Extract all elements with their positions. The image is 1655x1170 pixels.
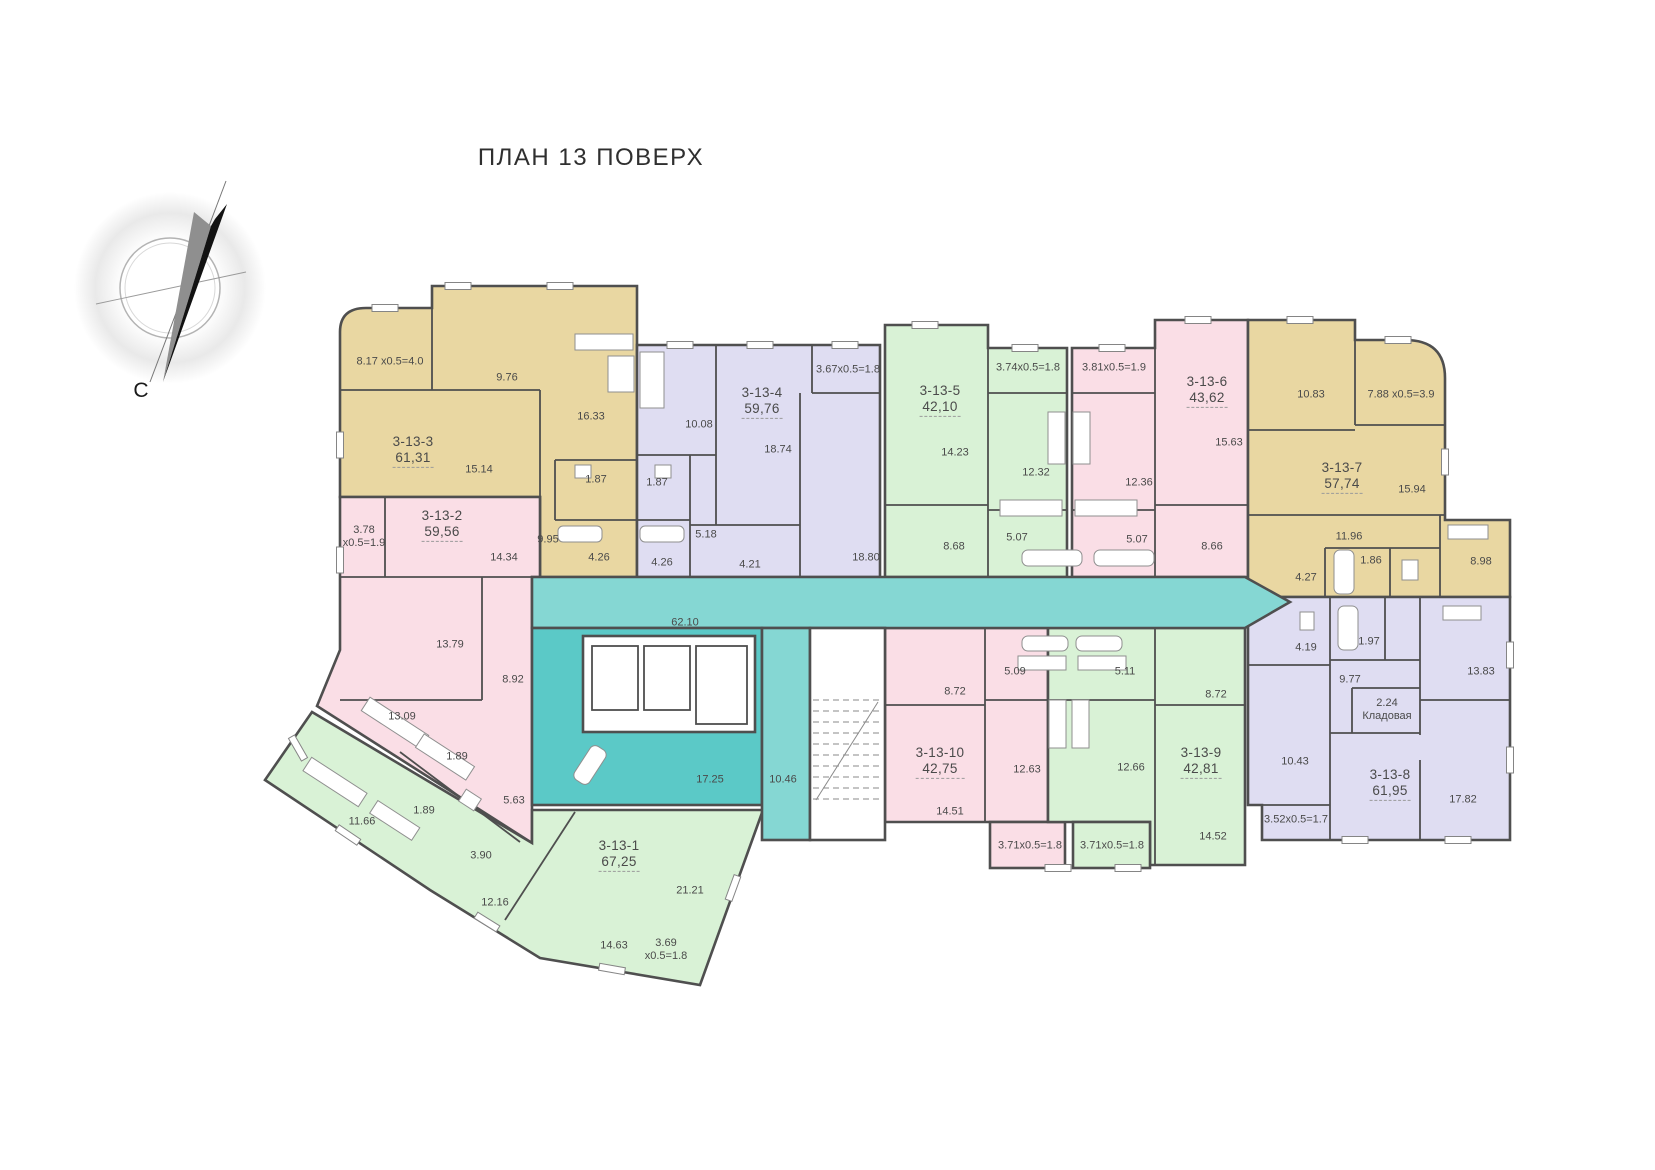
room-area-label: 5.63 — [503, 794, 524, 807]
room-area-label: 5.07 — [1006, 531, 1027, 544]
room-area-label: 15.63 — [1215, 436, 1243, 449]
corridor-area-label: 10.46 — [769, 773, 797, 786]
room-area-label: 1.97 — [1358, 635, 1379, 648]
room-area-label: 8.72 — [944, 685, 965, 698]
room-area-label: 12.32 — [1022, 466, 1050, 479]
apartment-3-13-2-label: 3-13-259,56 — [422, 508, 463, 542]
room-area-label: 3.71x0.5=1.8 — [1080, 839, 1144, 852]
apartment-3-13-8-label: 3-13-861,95 — [1370, 767, 1411, 801]
room-area-label: 2.24Кладовая — [1362, 697, 1411, 723]
room-area-label: 1.87 — [646, 476, 667, 489]
room-area-label: 21.21 — [676, 884, 704, 897]
room-area-label: 9.95 — [537, 533, 558, 546]
room-area-label: 8.92 — [502, 673, 523, 686]
room-area-label: 12.36 — [1125, 476, 1153, 489]
floor-plan-page: ПЛАН 13 ПОВЕРХ С 62.1017.2510.463-13-167… — [0, 0, 1655, 1170]
room-area-label: 3.67x0.5=1.8 — [816, 363, 880, 376]
room-area-label: 14.34 — [490, 551, 518, 564]
room-area-label: 12.16 — [481, 896, 509, 909]
room-area-label: 8.98 — [1470, 555, 1491, 568]
room-area-label: 8.66 — [1201, 540, 1222, 553]
room-area-label: 3.81x0.5=1.9 — [1082, 361, 1146, 374]
room-area-label: 11.66 — [349, 815, 376, 828]
room-area-label: 15.14 — [465, 463, 493, 476]
room-area-label: 4.26 — [651, 556, 672, 569]
apartment-3-13-1-label: 3-13-167,25 — [599, 838, 640, 872]
room-area-label: 8.72 — [1205, 688, 1226, 701]
apartment-3-13-7-label: 3-13-757,74 — [1322, 460, 1363, 494]
room-area-label: 15.94 — [1398, 483, 1426, 496]
room-area-label: 13.09 — [388, 710, 416, 723]
room-area-label: 3.74x0.5=1.8 — [996, 361, 1060, 374]
room-area-label: 11.96 — [1336, 530, 1363, 543]
room-area-label: 18.74 — [764, 443, 792, 456]
apartment-3-13-4-label: 3-13-459,76 — [742, 385, 783, 419]
room-area-label: 12.63 — [1013, 763, 1041, 776]
room-area-label: 12.66 — [1117, 761, 1145, 774]
room-area-label: 5.11 — [1115, 665, 1136, 678]
apartment-3-13-10-label: 3-13-1042,75 — [916, 745, 965, 779]
room-area-label: 14.51 — [936, 805, 964, 818]
room-area-label: 14.23 — [941, 446, 969, 459]
room-area-label: 13.83 — [1467, 665, 1495, 678]
room-area-label: 8.68 — [943, 540, 964, 553]
room-area-label: 5.07 — [1126, 533, 1147, 546]
room-area-label: 10.83 — [1297, 388, 1325, 401]
room-area-label: 8.17 x0.5=4.0 — [357, 355, 424, 368]
corridor-area-label: 17.25 — [696, 773, 724, 786]
room-area-label: 5.18 — [695, 528, 716, 541]
apartment-3-13-5-label: 3-13-542,10 — [920, 383, 961, 417]
room-area-label: 4.26 — [588, 551, 609, 564]
room-area-label: 7.88 x0.5=3.9 — [1368, 388, 1435, 401]
room-area-label: 9.77 — [1339, 673, 1360, 686]
room-area-label: 5.09 — [1004, 665, 1025, 678]
apartment-3-13-9-label: 3-13-942,81 — [1181, 745, 1222, 779]
room-area-label: 18.80 — [852, 551, 880, 564]
room-area-label: 1.86 — [1360, 554, 1381, 567]
room-area-label: 3.52x0.5=1.7 — [1264, 813, 1328, 826]
room-area-label: 10.43 — [1281, 755, 1309, 768]
room-area-label: 1.89 — [413, 804, 434, 817]
room-area-label: 17.82 — [1449, 793, 1477, 806]
corridor-area-label: 62.10 — [671, 616, 699, 629]
room-area-label: 4.19 — [1295, 641, 1316, 654]
room-area-label: 9.76 — [496, 371, 517, 384]
room-area-label: 14.63 — [600, 939, 628, 952]
room-area-label: 16.33 — [577, 410, 605, 423]
labels-layer: 62.1017.2510.463-13-167,2511.661.893.901… — [0, 0, 1655, 1170]
room-area-label: 4.27 — [1295, 571, 1316, 584]
room-area-label: 13.79 — [436, 638, 464, 651]
room-area-label: 3.71x0.5=1.8 — [998, 839, 1062, 852]
room-area-label: 3.90 — [470, 849, 491, 862]
room-area-label: 3.78x0.5=1.9 — [343, 524, 386, 550]
room-area-label: 4.21 — [739, 558, 760, 571]
apartment-3-13-3-label: 3-13-361,31 — [393, 434, 434, 468]
room-area-label: 1.89 — [446, 750, 467, 763]
room-area-label: 1.87 — [585, 473, 606, 486]
room-area-label: 3.69x0.5=1.8 — [645, 937, 688, 963]
room-area-label: 10.08 — [685, 418, 713, 431]
room-area-label: 14.52 — [1199, 830, 1227, 843]
apartment-3-13-6-label: 3-13-643,62 — [1187, 374, 1228, 408]
